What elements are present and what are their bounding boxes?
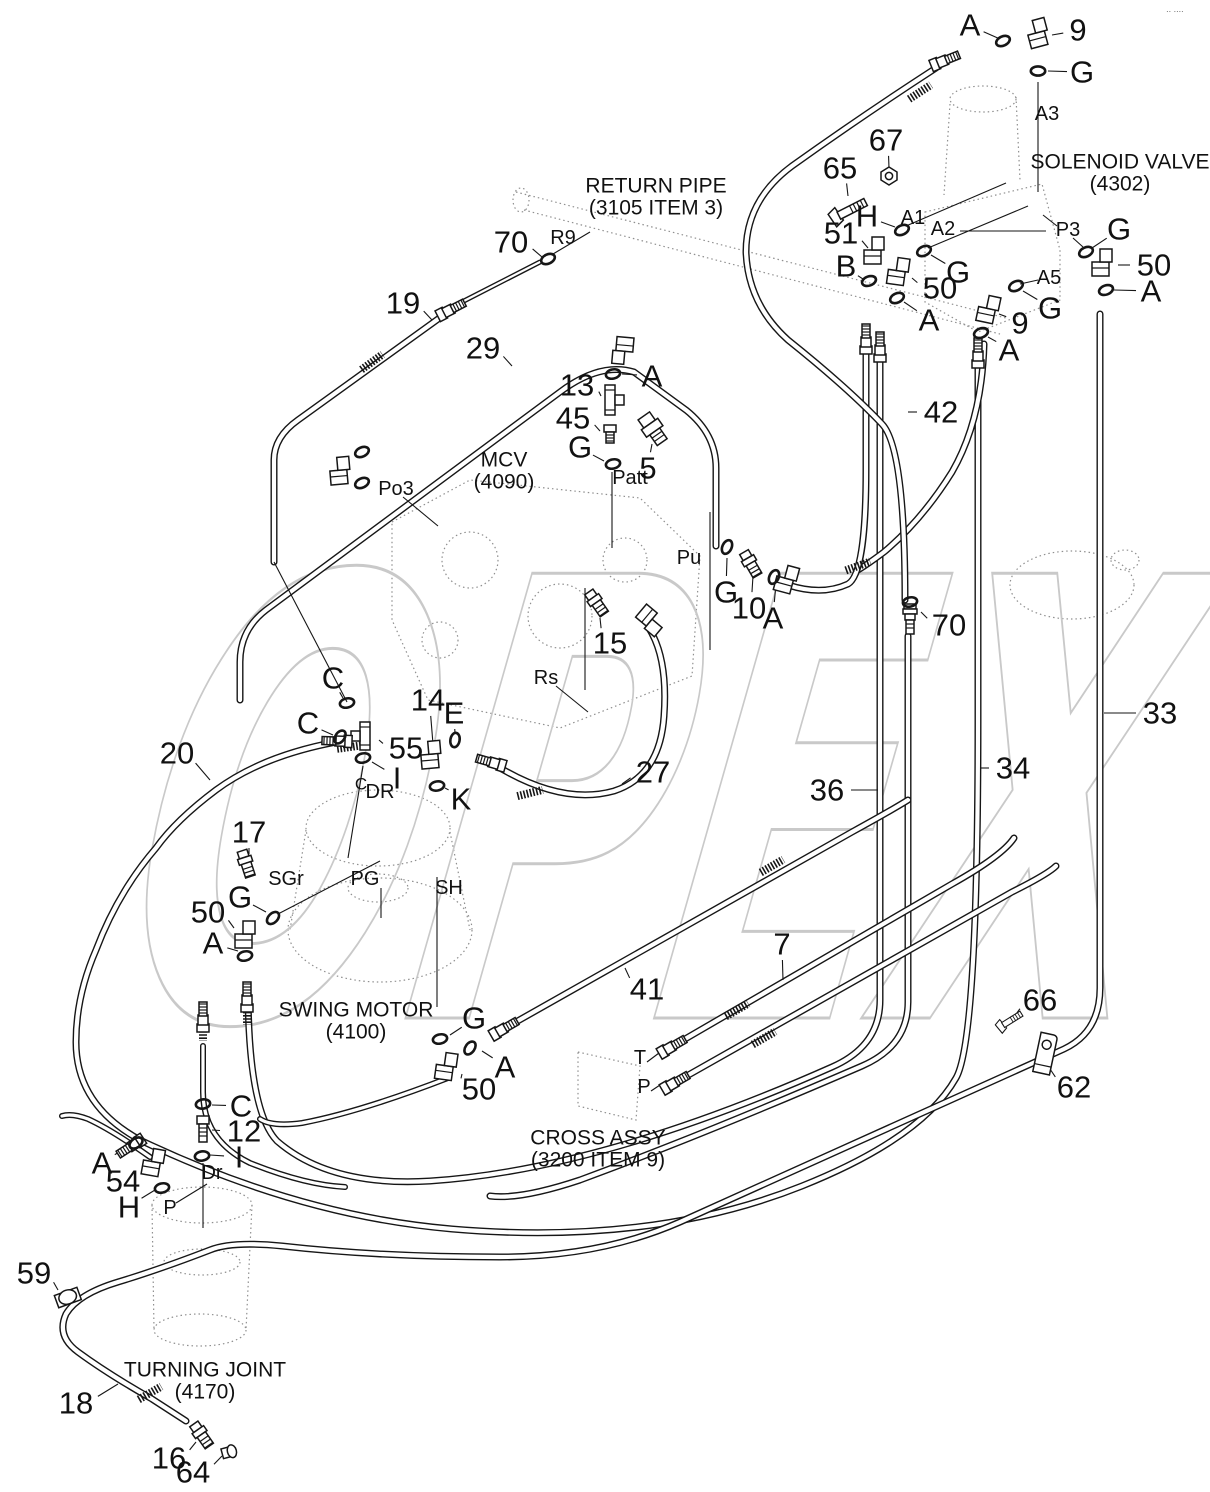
callout-leader	[595, 425, 600, 431]
callout-label-G: G	[1070, 55, 1094, 90]
callout-leader	[533, 249, 542, 257]
callout-label-H: H	[856, 199, 878, 234]
fitting-shape	[785, 565, 800, 581]
port-label-A2: A2	[931, 218, 955, 240]
oring	[1031, 66, 1045, 75]
callout-label-I: I	[235, 1140, 244, 1175]
callout-label-14: 14	[411, 683, 445, 718]
callout-leader	[503, 356, 512, 366]
oring	[1078, 245, 1095, 259]
callout-leader	[881, 222, 895, 227]
callout-label-E: E	[444, 696, 465, 731]
port-label-DR: DR	[366, 781, 395, 803]
component-title-cross-assy: (3200 ITEM 9)	[531, 1149, 665, 1172]
callout-leader	[912, 278, 917, 283]
callout-label-A: A	[203, 926, 224, 961]
fitting-elbow	[976, 294, 1001, 325]
fitting-plug64	[221, 1444, 238, 1460]
fitting-hosend	[860, 324, 872, 354]
callout-label-19: 19	[386, 286, 420, 321]
callout-leader	[599, 392, 601, 396]
callout-label-70: 70	[494, 225, 528, 260]
callout-leader	[904, 302, 917, 311]
fitting-nut67	[881, 167, 897, 185]
callout-label-G: G	[1038, 291, 1062, 326]
fitting-shape	[906, 620, 914, 634]
fitting-shape	[360, 722, 370, 750]
corner-tiny-mark: ∙∙ ∙∙∙∙	[1166, 6, 1184, 16]
callout-leader	[190, 1442, 196, 1450]
callout-label-41: 41	[630, 972, 664, 1007]
fitting-elbow	[1092, 249, 1112, 276]
fitting-straight	[188, 1420, 215, 1450]
oring	[861, 274, 878, 288]
fitting-shape	[235, 934, 252, 948]
component-title-swing-motor: SWING MOTOR	[279, 999, 434, 1022]
port-label-A5: A5	[1037, 267, 1061, 289]
oring	[889, 291, 906, 305]
callout-label-66: 66	[1023, 983, 1057, 1018]
ghost-outline	[246, 1205, 252, 1330]
fitting-sensor5	[636, 410, 671, 448]
callout-leader	[726, 558, 727, 576]
port-label-Po3: Po3	[378, 478, 414, 500]
fitting-shape	[243, 921, 255, 934]
fitting-elbow	[612, 336, 634, 365]
fitting-tee13	[605, 385, 624, 415]
callout-leader	[862, 241, 868, 248]
fitting-shape	[337, 456, 350, 470]
callout-leader	[1048, 71, 1067, 72]
port-label-P3: P3	[1056, 219, 1080, 241]
fitting-shape	[1100, 249, 1112, 262]
callout-leader	[782, 960, 783, 980]
component-title-return-pipe: RETURN PIPE	[585, 175, 726, 198]
callout-label-G: G	[228, 880, 252, 915]
callout-leader	[1092, 238, 1107, 248]
oring-shape	[1031, 66, 1045, 75]
callout-label-C: C	[297, 706, 319, 741]
callout-label-65: 65	[823, 151, 857, 186]
fitting-adapter12	[197, 1116, 209, 1142]
callout-label-64: 64	[176, 1455, 210, 1490]
callout-label-34: 34	[996, 751, 1030, 786]
callout-label-7: 7	[773, 927, 790, 962]
component-title-swing-motor: (4100)	[326, 1021, 387, 1044]
oring	[995, 34, 1012, 48]
ghost-ellipse	[513, 188, 529, 212]
fitting-elbow	[886, 256, 910, 286]
callout-label-A: A	[495, 1050, 516, 1085]
hydraulic-piping-diagram-svg: OPEX A9G6765H51B50GA9GAG50A701929A1345G5…	[0, 0, 1210, 1492]
port-label-T: T	[634, 1047, 646, 1069]
fitting-shape	[197, 1116, 209, 1124]
ghost-ellipse	[950, 86, 1016, 112]
component-title-return-pipe: (3105 ITEM 3)	[589, 197, 723, 220]
oring-shape	[1078, 245, 1095, 259]
callout-leader	[54, 1282, 58, 1290]
fitting-shape	[615, 395, 624, 405]
fitting-shape	[428, 740, 441, 754]
component-title-turning-joint: (4170)	[175, 1381, 236, 1404]
callout-label-A: A	[960, 8, 981, 43]
callout-label-50: 50	[191, 895, 225, 930]
callout-leader	[1114, 290, 1136, 291]
component-title-mcv: MCV	[481, 449, 528, 472]
callout-leader	[214, 1456, 222, 1464]
callout-label-12: 12	[227, 1114, 261, 1149]
component-title-turning-joint: TURNING JOINT	[124, 1359, 286, 1382]
callout-label-A: A	[642, 359, 663, 394]
ghost-ellipse	[154, 1314, 246, 1346]
oring	[540, 252, 557, 266]
component-title-cross-assy: CROSS ASSY	[530, 1127, 665, 1150]
diagram-canvas: OPEX A9G6765H51B50GA9GAG50A701929A1345G5…	[0, 0, 1210, 1492]
fitting-hosend	[874, 332, 886, 362]
callout-label-67: 67	[869, 123, 903, 158]
fitting-shape	[872, 237, 884, 250]
callout-label-70: 70	[932, 608, 966, 643]
callout-label-59: 59	[17, 1256, 51, 1291]
callout-label-G: G	[946, 255, 970, 290]
port-label-A1: A1	[901, 207, 925, 229]
oring-shape	[889, 291, 906, 305]
oring-shape	[1098, 283, 1115, 297]
port-label-SH: SH	[435, 877, 463, 899]
port-label-Patt: Patt	[612, 467, 648, 489]
callout-label-H: H	[118, 1190, 140, 1225]
port-label-P: P	[163, 1197, 176, 1219]
callout-label-9: 9	[1069, 13, 1086, 48]
oring-shape	[861, 274, 878, 288]
callout-label-G: G	[568, 430, 592, 465]
callout-label-B: B	[836, 249, 857, 284]
oring	[973, 326, 990, 340]
callout-label-K: K	[451, 782, 472, 817]
oring-shape	[916, 244, 933, 258]
fitting-hosend	[435, 297, 467, 321]
component-title-mcv: (4090)	[474, 471, 535, 494]
port-label-SGr: SGr	[268, 868, 304, 890]
fitting-shape	[1032, 17, 1047, 33]
callout-label-42: 42	[924, 395, 958, 430]
callout-leader	[988, 337, 996, 342]
fitting-hosend	[197, 1002, 209, 1032]
fitting-elbow	[864, 237, 884, 264]
callout-label-33: 33	[1143, 696, 1177, 731]
hose-core	[458, 262, 540, 304]
callout-leader	[858, 276, 863, 279]
fitting-shape	[199, 1124, 207, 1142]
callout-leader	[1023, 291, 1037, 299]
callout-label-15: 15	[593, 626, 627, 661]
callout-label-51: 51	[824, 216, 858, 251]
callout-label-10: 10	[732, 591, 766, 626]
callout-label-A: A	[1141, 274, 1162, 309]
fitting-shape	[896, 258, 910, 273]
oring	[1008, 279, 1025, 293]
fitting-shape	[905, 614, 915, 620]
ghost-outline	[944, 104, 950, 195]
port-label-PG: PG	[351, 868, 380, 890]
fitting-reducer45	[604, 425, 616, 443]
callout-label-G: G	[1107, 212, 1131, 247]
port-label-A3: A3	[1035, 103, 1059, 125]
component-title-solenoid-valve: SOLENOID VALVE	[1031, 151, 1210, 174]
oring	[916, 244, 933, 258]
callout-label-C: C	[322, 661, 344, 696]
fitting-shape	[864, 250, 881, 264]
callout-label-A: A	[919, 303, 940, 338]
fitting-shape	[1028, 31, 1048, 49]
callout-label-13: 13	[560, 368, 594, 403]
oring	[1098, 283, 1115, 297]
callout-leader	[142, 1190, 155, 1198]
callout-label-62: 62	[1057, 1070, 1091, 1105]
fitting-hosend	[972, 338, 984, 368]
callout-leader	[424, 311, 432, 320]
component-title-solenoid-valve: (4302)	[1090, 173, 1151, 196]
callout-label-A: A	[763, 601, 784, 636]
callout-label-18: 18	[59, 1386, 93, 1421]
callout-leader	[931, 255, 945, 263]
callout-label-29: 29	[466, 331, 500, 366]
oring-shape	[973, 326, 990, 340]
callout-leader	[98, 1384, 118, 1396]
oring-shape	[1008, 279, 1025, 293]
port-label-R9: R9	[550, 227, 576, 249]
fitting-elbow	[1025, 17, 1051, 48]
fitting-hosend	[241, 982, 253, 1012]
callout-label-A: A	[999, 333, 1020, 368]
oring-shape	[540, 252, 557, 266]
fitting-hosend	[929, 49, 961, 71]
fitting-shape	[444, 1053, 458, 1068]
port-label-Pu: Pu	[677, 547, 701, 569]
oring	[154, 1182, 170, 1194]
fitting-shape	[885, 172, 892, 179]
callout-label-50: 50	[462, 1072, 496, 1107]
callout-label-17: 17	[232, 815, 266, 850]
callout-leader	[212, 1130, 220, 1131]
callout-label-36: 36	[810, 773, 844, 808]
fitting-shape	[604, 425, 616, 432]
port-label-Dr: Dr	[201, 1162, 222, 1184]
port-label-P: P	[637, 1076, 650, 1098]
callout-label-27: 27	[636, 755, 670, 790]
port-label-Rs: Rs	[534, 667, 558, 689]
ghost-outline	[1016, 97, 1020, 180]
oring-shape	[154, 1182, 170, 1194]
oring-shape	[995, 34, 1012, 48]
fitting-shape	[1092, 262, 1109, 276]
fitting-shape	[612, 350, 625, 364]
callout-label-20: 20	[160, 736, 194, 771]
fitting-shape	[151, 1149, 165, 1164]
fitting-shape	[987, 295, 1001, 310]
callout-leader	[1052, 33, 1063, 35]
callout-label-G: G	[462, 1001, 486, 1036]
